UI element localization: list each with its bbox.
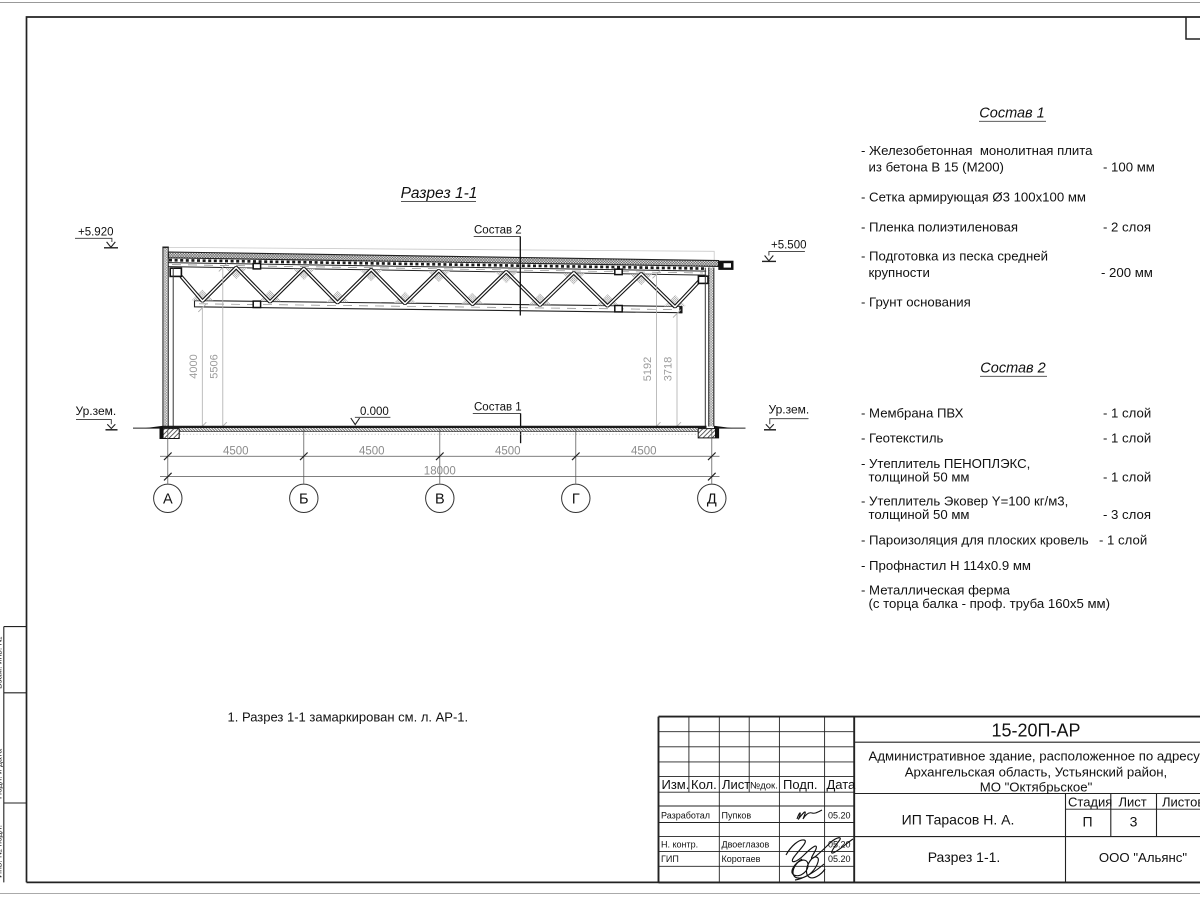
svg-text:А: А: [163, 491, 173, 507]
svg-text:Подп.: Подп.: [783, 777, 818, 792]
svg-text:Состав 1: Состав 1: [474, 402, 522, 414]
svg-text:- Железобетонная монолитная п: - Железобетонная монолитная плита: [861, 143, 1093, 158]
svg-text:Лист: Лист: [1119, 795, 1147, 810]
svg-text:3: 3: [1130, 814, 1138, 830]
svg-text:МО "Октябрьское": МО "Октябрьское": [980, 780, 1093, 795]
svg-text:Состав 2: Состав 2: [980, 361, 1045, 377]
svg-text:- 100 мм: - 100 мм: [1103, 160, 1155, 175]
svg-text:- 1 слой: - 1 слой: [1103, 470, 1151, 485]
svg-text:П: П: [1082, 814, 1092, 830]
svg-text:№док.: №док.: [750, 781, 778, 792]
svg-text:Разрез 1-1.: Разрез 1-1.: [928, 849, 1001, 865]
svg-text:В: В: [435, 491, 445, 507]
svg-text:- Пароизоляция для плоских кро: - Пароизоляция для плоских кровель: [861, 533, 1089, 548]
svg-text:- Профнастил Н 114х0.9 мм: - Профнастил Н 114х0.9 мм: [861, 558, 1031, 573]
svg-text:Состав 1: Состав 1: [979, 106, 1044, 122]
svg-text:Состав 2: Состав 2: [474, 225, 522, 237]
svg-text:Ур.зем.: Ур.зем.: [76, 404, 117, 418]
svg-text:18000: 18000: [424, 466, 456, 478]
svg-text:Двоеглазов: Двоеглазов: [722, 840, 770, 850]
svg-text:Подп. и дата: Подп. и дата: [0, 749, 4, 799]
svg-text:4500: 4500: [495, 445, 521, 457]
svg-text:Г: Г: [572, 491, 580, 507]
svg-text:5506: 5506: [208, 354, 220, 378]
svg-text:(с торца балка - проф. труба 1: (с торца балка - проф. труба 160х5 мм): [869, 596, 1110, 611]
svg-text:+5.920: +5.920: [78, 227, 114, 239]
svg-text:Инв. № подл.: Инв. № подл.: [0, 825, 4, 878]
svg-text:1. Разрез 1-1 замаркирован см.: 1. Разрез 1-1 замаркирован см. л. АР-1.: [228, 710, 469, 725]
svg-text:Взам. инв. №: Взам. инв. №: [0, 636, 4, 689]
svg-text:- Грунт основания: - Грунт основания: [861, 295, 971, 310]
svg-text:- 1 слой: - 1 слой: [1103, 431, 1151, 446]
svg-text:0.000: 0.000: [360, 406, 389, 418]
svg-text:Стадия: Стадия: [1068, 795, 1112, 810]
svg-text:ГИП: ГИП: [661, 854, 679, 864]
svg-text:- Сетка армирующая Ø3 100х100: - Сетка армирующая Ø3 100х100 мм: [861, 190, 1086, 205]
svg-text:Архангельская область, Устьянс: Архангельская область, Устьянский район,: [905, 765, 1167, 780]
svg-text:Административное здание, распо: Административное здание, расположенное п…: [869, 749, 1200, 764]
svg-text:Разработал: Разработал: [661, 811, 710, 821]
svg-text:3718: 3718: [663, 357, 675, 381]
svg-text:- Геотекстиль: - Геотекстиль: [861, 431, 944, 446]
svg-text:Разрез 1-1: Разрез 1-1: [401, 185, 478, 202]
svg-text:толщиной 50 мм: толщиной 50 мм: [869, 507, 970, 522]
svg-text:- 3 слоя: - 3 слоя: [1103, 507, 1151, 522]
svg-text:Коротаев: Коротаев: [722, 854, 761, 864]
svg-text:- 200 мм: - 200 мм: [1101, 265, 1153, 280]
svg-text:4500: 4500: [223, 445, 249, 457]
svg-text:Лист: Лист: [722, 777, 750, 792]
svg-text:- 1 слой: - 1 слой: [1103, 406, 1151, 421]
svg-text:Пупков: Пупков: [722, 811, 752, 821]
svg-text:из бетона В 15 (М200): из бетона В 15 (М200): [869, 160, 1004, 175]
svg-text:- 1 слой: - 1 слой: [1099, 533, 1147, 548]
svg-text:Н. контр.: Н. контр.: [661, 840, 698, 850]
svg-text:Ур.зем.: Ур.зем.: [769, 403, 810, 417]
svg-text:крупности: крупности: [869, 265, 930, 280]
svg-text:4500: 4500: [631, 445, 657, 457]
svg-text:Б: Б: [299, 491, 309, 507]
svg-text:- 2 слоя: - 2 слоя: [1103, 220, 1151, 235]
svg-text:Дата: Дата: [827, 777, 857, 792]
svg-text:ООО "Альянс": ООО "Альянс": [1099, 850, 1187, 865]
svg-text:толщиной 50 мм: толщиной 50 мм: [869, 470, 970, 485]
svg-text:- Мембрана ПВХ: - Мембрана ПВХ: [861, 406, 964, 421]
svg-text:05.20: 05.20: [828, 811, 851, 821]
svg-text:+5.500: +5.500: [771, 239, 807, 251]
svg-text:15-20П-АР: 15-20П-АР: [992, 721, 1081, 741]
svg-text:- Подготовка из песка средней: - Подготовка из песка средней: [861, 249, 1048, 264]
svg-text:ИП Тарасов Н. А.: ИП Тарасов Н. А.: [902, 812, 1015, 828]
svg-text:4000: 4000: [188, 354, 200, 378]
svg-text:05.20: 05.20: [828, 854, 851, 864]
svg-text:Изм.: Изм.: [662, 777, 690, 792]
svg-text:Д: Д: [707, 491, 717, 507]
svg-text:Кол.: Кол.: [691, 777, 717, 792]
svg-text:5192: 5192: [642, 357, 654, 381]
svg-text:4500: 4500: [359, 445, 385, 457]
svg-text:Листов: Листов: [1162, 795, 1200, 810]
svg-text:- Пленка полиэтиленовая: - Пленка полиэтиленовая: [861, 220, 1018, 235]
